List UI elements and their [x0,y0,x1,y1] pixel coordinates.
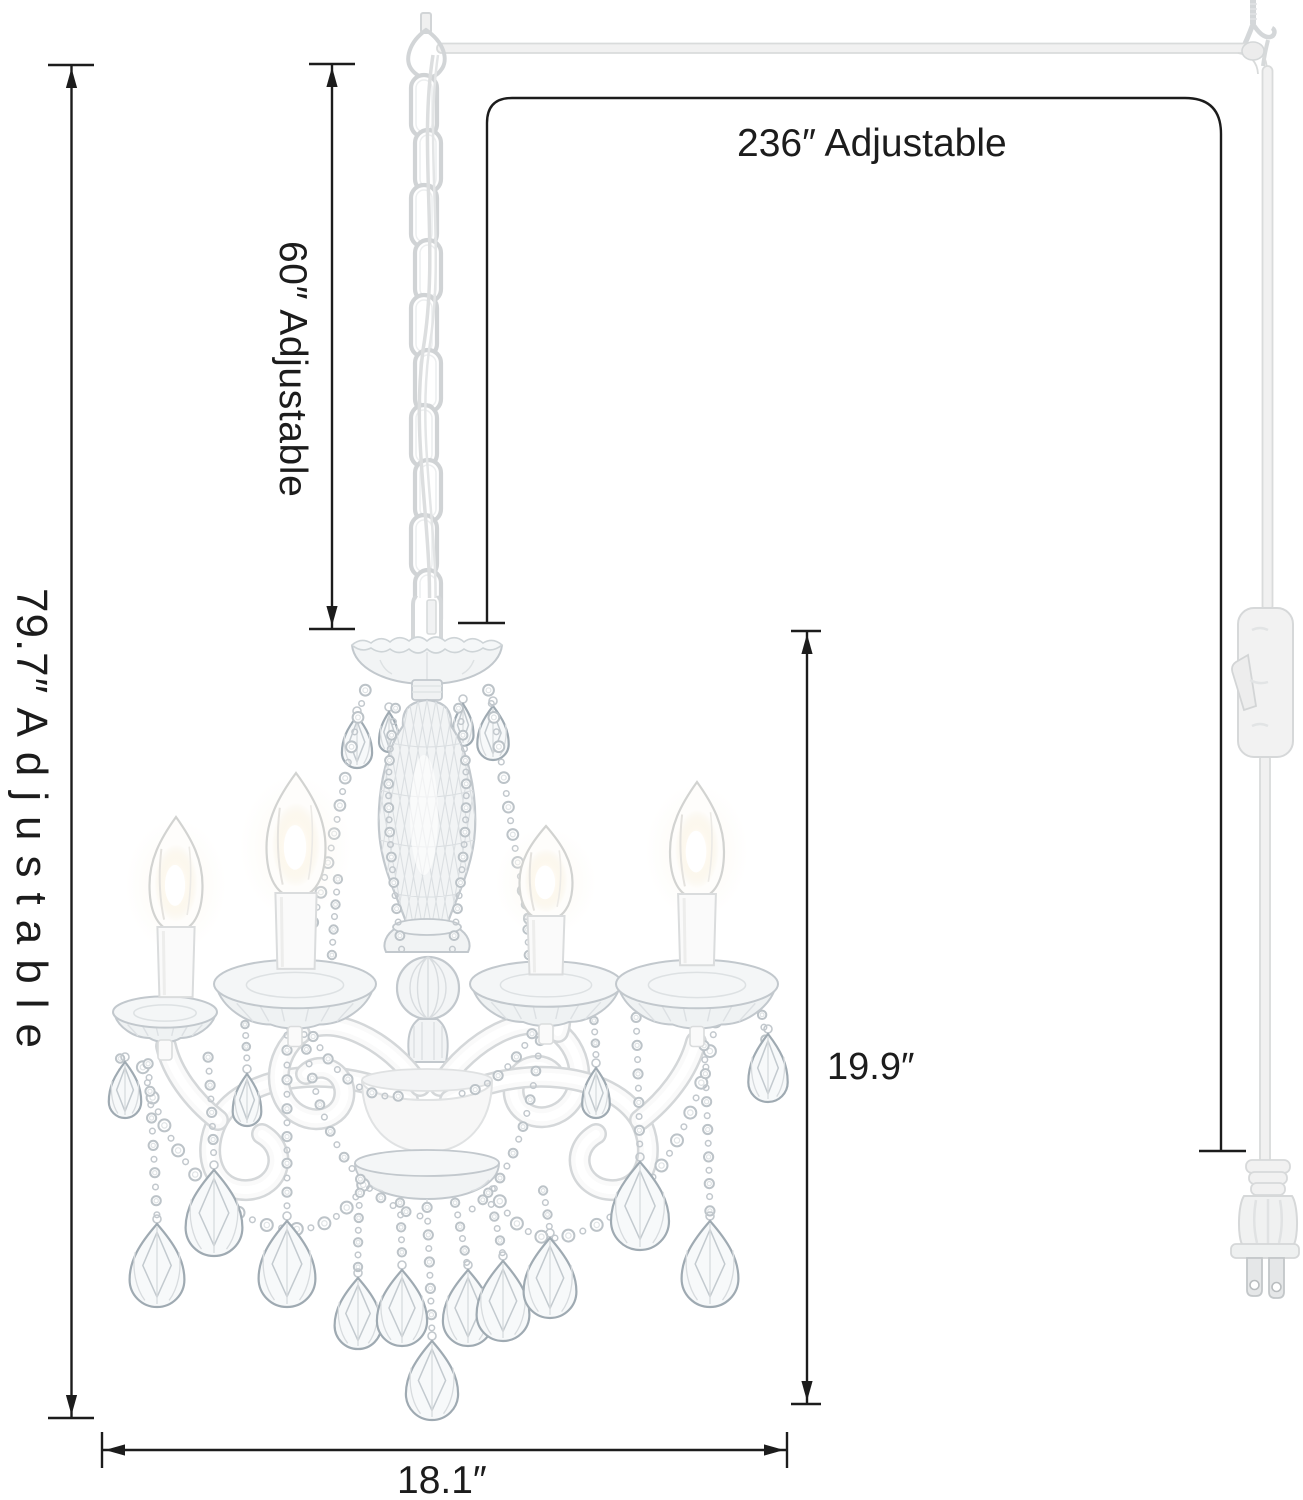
svg-text:19.9″: 19.9″ [827,1046,914,1088]
svg-text:236″ Adjustable: 236″ Adjustable [737,122,1007,165]
svg-text:79.7″ Adjustable: 79.7″ Adjustable [7,588,56,1063]
svg-text:60″ Adjustable: 60″ Adjustable [271,241,314,497]
svg-text:18.1″: 18.1″ [397,1459,487,1500]
